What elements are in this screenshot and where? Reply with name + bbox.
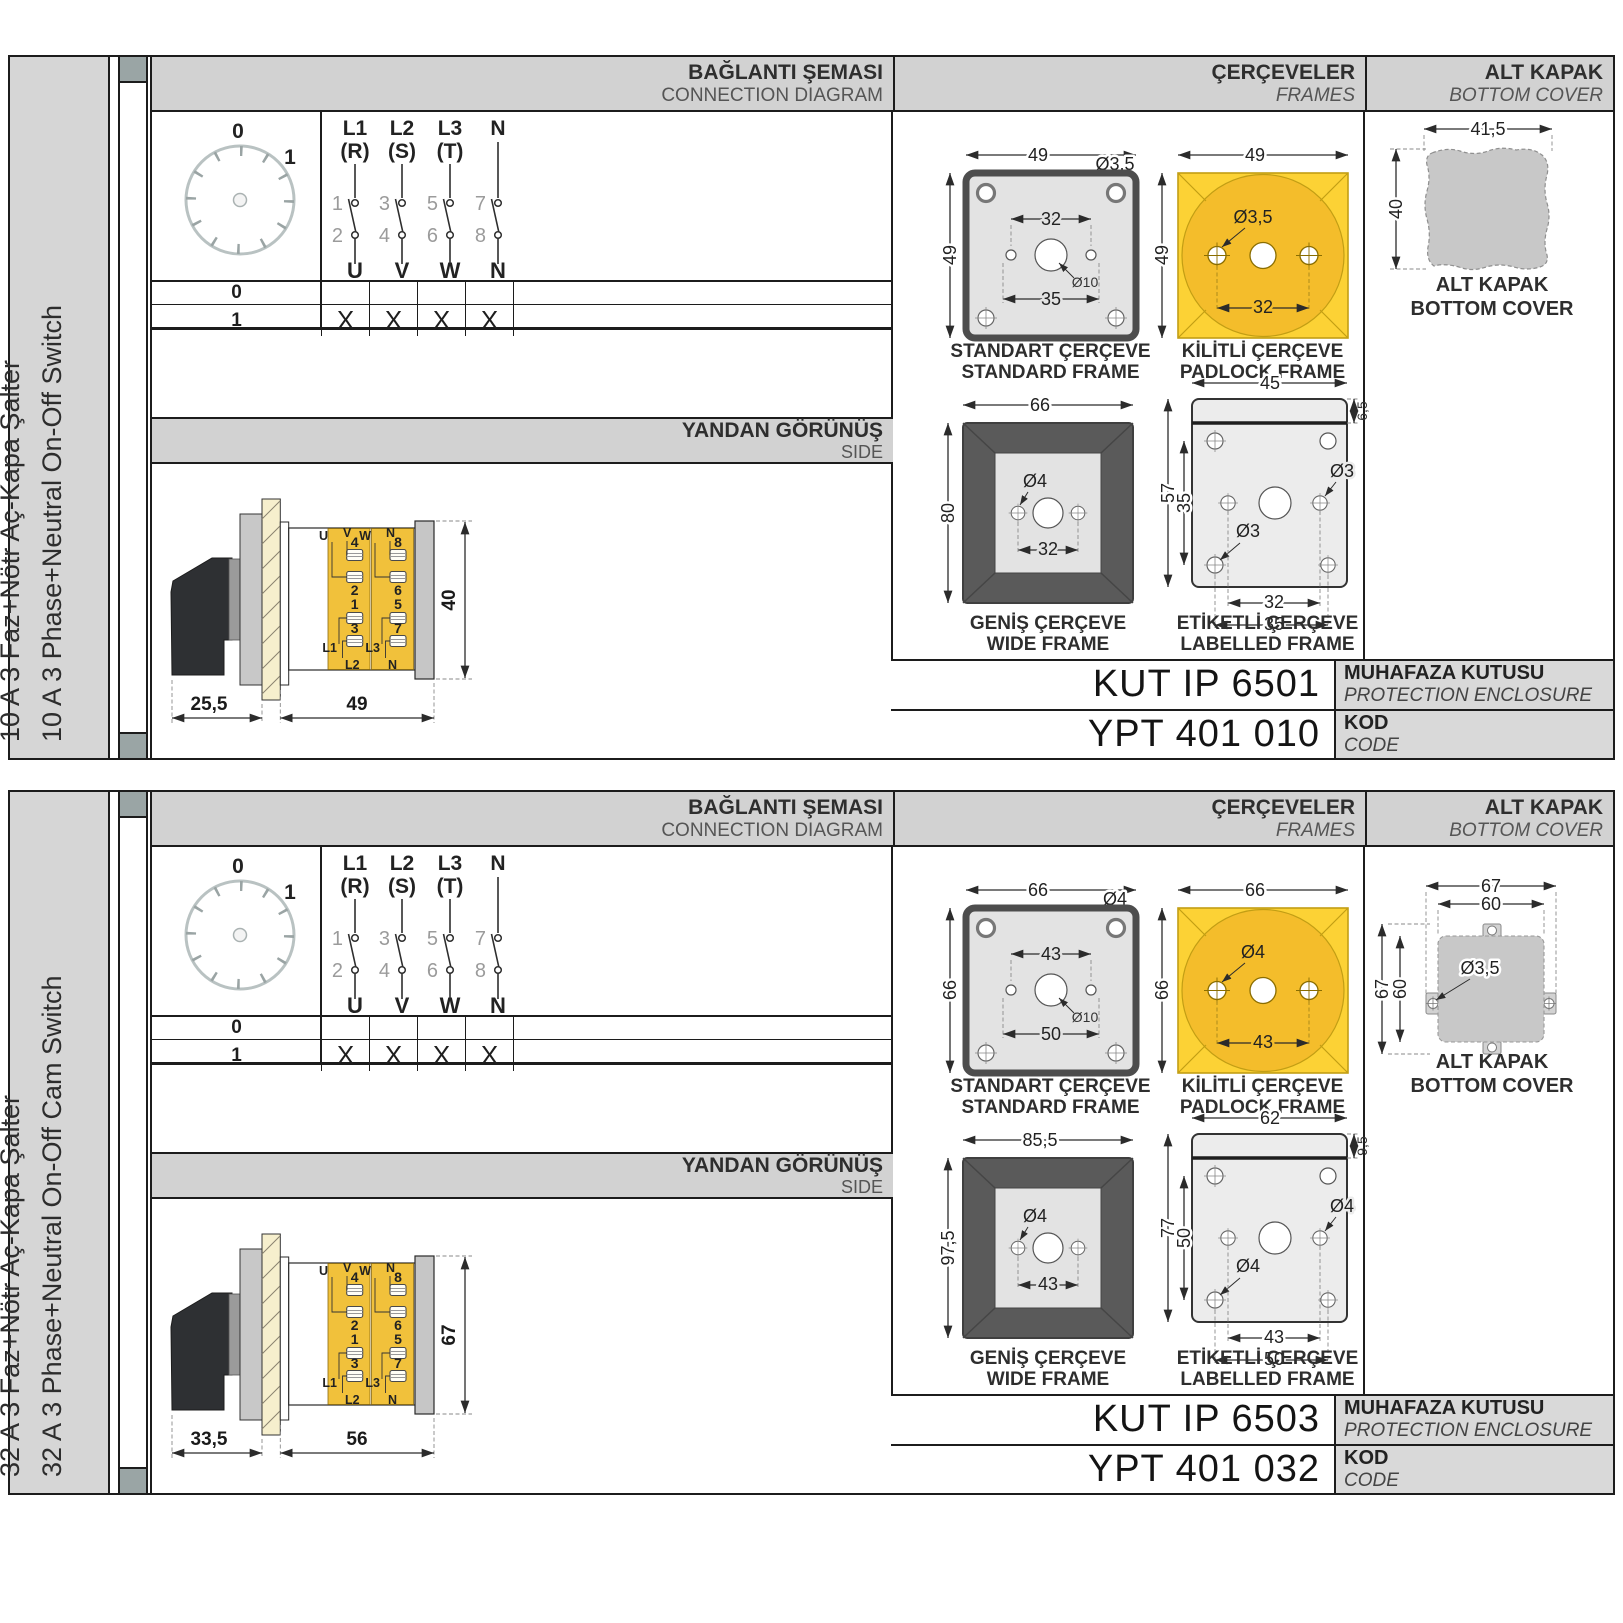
pad-hole-dim: Ø4 [1241, 942, 1265, 962]
wide-frame-caption: GENİŞ ÇERÇEVE WIDE FRAME [938, 613, 1158, 655]
mounting-panel [262, 499, 280, 700]
connection-header: BAĞLANTI ŞEMASI CONNECTION DIAGRAM [152, 792, 893, 845]
std-span-dim: 43 [1041, 944, 1061, 964]
enclosure-code: KUT IP 6501 [891, 661, 1334, 709]
bottom-cover-header-en: BOTTOM COVER [1449, 85, 1603, 107]
product-code: YPT 401 032 [891, 1446, 1334, 1494]
pole-4: N 7 8 N [475, 852, 506, 1018]
code-label: KOD CODE [1334, 1446, 1613, 1494]
pole-2: L2 (S) 3 4 V [379, 852, 416, 1018]
table-cell [465, 282, 513, 304]
handle-shaft [229, 1294, 241, 1375]
bottom-cover-header: ALT KAPAK BOTTOM COVER [1365, 792, 1613, 845]
svg-text:5: 5 [394, 1331, 402, 1347]
body-depth-dim: 49 [346, 694, 367, 715]
pad-width-dim: 66 [1245, 880, 1265, 900]
side-view-header-en: SIDE [841, 442, 883, 462]
standard-frame-caption: STANDART ÇERÇEVE STANDARD FRAME [938, 1076, 1163, 1118]
connection-header-tr: BAĞLANTI ŞEMASI [688, 61, 883, 85]
table-cell [417, 1017, 465, 1039]
rotary-dial-drawing: 0 1 [152, 112, 322, 282]
frames-header-en: FRAMES [1276, 820, 1355, 842]
standard-frame-drawing: 66 Ø4 66 43 Ø10 50 [938, 878, 1163, 1083]
wide-height-dim: 97,5 [938, 1230, 958, 1265]
svg-text:6: 6 [427, 225, 438, 247]
wide-frame-drawing: 85,5 97,5 Ø4 43 [938, 1130, 1158, 1355]
side-view-drawing: 4 2 1 3 8 6 5 7 U V W N L1 L2 L3 N 33,5 … [152, 1187, 512, 1487]
switch-handle [171, 1293, 232, 1410]
bottom-cover-caption: ALT KAPAK BOTTOM COVER [1372, 273, 1612, 321]
table-cell: X [417, 305, 465, 336]
row-label: 1 [152, 1040, 321, 1071]
svg-text:8: 8 [475, 960, 486, 982]
lab-height2-dim: 35 [1174, 493, 1194, 513]
product-panel: 10 A 3 Faz+Nötr Aç-Kapa Şalter 10 A 3 Ph… [8, 55, 1615, 760]
svg-text:L2: L2 [390, 117, 415, 140]
contact-number: 2 [332, 225, 343, 247]
lab-band-dim: 6,5 [1354, 401, 1370, 421]
terminal-number: 4 [351, 534, 359, 550]
enclosure-code: KUT IP 6503 [891, 1396, 1334, 1444]
code-rows: KUT IP 6503 MUHAFAZA KUTUSU PROTECTION E… [891, 1394, 1613, 1493]
pad-hole-dim: Ø3,5 [1233, 207, 1272, 227]
cover-outer-width-dim: 67 [1481, 876, 1501, 896]
cover-hole-dim: Ø3,5 [1460, 958, 1499, 978]
code-row: YPT 401 010 KOD CODE [891, 711, 1613, 759]
frames-header: ÇERÇEVELER FRAMES [893, 57, 1365, 110]
product-name-en: 32 A 3 Phase+Neutral On-Off Cam Switch [37, 975, 68, 1477]
connection-header: BAĞLANTI ŞEMASI CONNECTION DIAGRAM [152, 57, 893, 110]
contact-number: 2 [332, 960, 343, 982]
contact-diagram: L1 (R) 1 2 U L2 (S) 3 4 V L3 (T) 5 6 [328, 114, 892, 280]
code-row: YPT 401 032 KOD CODE [891, 1446, 1613, 1494]
lab-hole2-dim: Ø3 [1236, 521, 1260, 541]
svg-text:N: N [388, 658, 397, 672]
bottom-cover-drawing: 41,5 40 [1372, 117, 1612, 282]
svg-text:L3: L3 [365, 1376, 380, 1390]
svg-text:L1: L1 [322, 641, 337, 655]
table-cell: X [465, 305, 513, 336]
product-name-tr: 10 A 3 Faz+Nötr Aç-Kapa Şalter [0, 360, 26, 742]
table-cell [369, 1017, 417, 1039]
cover-width-dim: 41,5 [1470, 119, 1505, 139]
table-cell: X [369, 1040, 417, 1071]
product-name-en: 10 A 3 Phase+Neutral On-Off Switch [37, 305, 68, 742]
table-cell [369, 282, 417, 304]
product-name-tr: 32 A 3 Faz+Nötr Aç-Kapa Şalter [0, 1095, 26, 1477]
code-label: KOD CODE [1334, 711, 1613, 759]
svg-text:4: 4 [379, 225, 390, 247]
svg-text:8: 8 [394, 1269, 402, 1285]
pole-3: L3 (T) 5 6 W [427, 852, 464, 1018]
row-label: 0 [152, 1017, 321, 1039]
svg-text:4: 4 [379, 960, 390, 982]
pad-span-dim: 43 [1253, 1032, 1273, 1052]
svg-text:L2: L2 [345, 658, 360, 672]
table-cell: X [465, 1040, 513, 1071]
frames-header-tr: ÇERÇEVELER [1211, 61, 1355, 85]
pole-terminal-label: L1 [343, 852, 368, 875]
lab-width-dim: 45 [1260, 373, 1280, 393]
svg-text:8: 8 [475, 225, 486, 247]
svg-text:L3: L3 [365, 641, 380, 655]
svg-text:N: N [388, 1393, 397, 1407]
pole-2: L2 (S) 3 4 V [379, 117, 416, 283]
table-row-0: 0 [152, 282, 893, 304]
pole-1: L1 (R) 1 2 U [332, 117, 370, 283]
wide-frame-caption: GENİŞ ÇERÇEVE WIDE FRAME [938, 1348, 1158, 1390]
frames-header-tr: ÇERÇEVELER [1211, 796, 1355, 820]
enclosure-label: MUHAFAZA KUTUSU PROTECTION ENCLOSURE [1334, 661, 1613, 709]
svg-text:3: 3 [351, 620, 359, 636]
row-label: 1 [152, 305, 321, 336]
svg-text:7: 7 [394, 1355, 402, 1371]
spacer-block-top [120, 57, 146, 83]
mounting-panel [262, 1234, 280, 1435]
standard-frame-drawing: 49 Ø3,5 49 32 Ø10 35 [938, 143, 1163, 348]
table-row-0: 0 [152, 1017, 893, 1039]
pole-3: L3 (T) 5 6 W [427, 117, 464, 283]
std-span-dim: 32 [1041, 209, 1061, 229]
side-view-header-tr: YANDAN GÖRÜNÜŞ [682, 419, 883, 442]
std-height-dim: 66 [940, 980, 960, 1000]
bottom-cover-header-en: BOTTOM COVER [1449, 820, 1603, 842]
switch-handle [171, 558, 232, 675]
pole-1: L1 (R) 1 2 U [332, 852, 370, 1018]
cover-height-dim: 40 [1386, 199, 1406, 219]
svg-text:N: N [490, 852, 505, 875]
switching-table: 0 1 X X X X [152, 1015, 893, 1065]
contact-diagram: L1 (R) 1 2 U L2 (S) 3 4 V L3 (T) 5 6 [328, 849, 892, 1015]
wide-hole-dim: Ø4 [1023, 471, 1047, 491]
wide-width-dim: 85,5 [1022, 1130, 1057, 1150]
wide-width-dim: 66 [1030, 395, 1050, 415]
code-rows: KUT IP 6501 MUHAFAZA KUTUSU PROTECTION E… [891, 659, 1613, 758]
catalog-page: 10 A 3 Faz+Nötr Aç-Kapa Şalter 10 A 3 Ph… [0, 0, 1623, 1623]
svg-text:5: 5 [427, 928, 438, 950]
table-cell: X [417, 1040, 465, 1071]
lab-hole1-dim: Ø3 [1330, 461, 1354, 481]
pad-span-dim: 32 [1253, 297, 1273, 317]
wide-span-dim: 43 [1038, 1274, 1058, 1294]
connection-header-tr: BAĞLANTI ŞEMASI [688, 796, 883, 820]
lab-hole1-dim: Ø4 [1330, 1196, 1354, 1216]
svg-text:W: W [359, 1264, 371, 1278]
svg-text:8: 8 [394, 534, 402, 550]
section-header-row: BAĞLANTI ŞEMASI CONNECTION DIAGRAM ÇERÇE… [150, 792, 1613, 847]
std-center-hole-dim: Ø10 [1072, 1009, 1099, 1025]
bottom-cover-header-tr: ALT KAPAK [1485, 61, 1603, 85]
svg-text:V: V [343, 526, 352, 540]
wide-span-dim: 32 [1038, 539, 1058, 559]
table-filler [513, 305, 893, 336]
svg-text:7: 7 [394, 620, 402, 636]
spacer-plate [280, 522, 288, 685]
lab-hole2-dim: Ø4 [1236, 1256, 1260, 1276]
spacer-column [118, 792, 148, 1493]
bottom-cover-caption: ALT KAPAK BOTTOM COVER [1372, 1050, 1612, 1098]
front-depth-dim: 25,5 [191, 694, 228, 715]
bottom-cover-header-tr: ALT KAPAK [1485, 796, 1603, 820]
svg-text:5: 5 [394, 596, 402, 612]
product-panel: 32 A 3 Faz+Nötr Aç-Kapa Şalter 32 A 3 Ph… [8, 790, 1615, 1495]
padlock-frame-drawing: 49 49 Ø3,5 32 [1150, 143, 1375, 348]
spacer-plate [280, 1257, 288, 1420]
svg-text:L1: L1 [322, 1376, 337, 1390]
svg-text:L2: L2 [390, 852, 415, 875]
pad-width-dim: 49 [1245, 145, 1265, 165]
section-header-row: BAĞLANTI ŞEMASI CONNECTION DIAGRAM ÇERÇE… [150, 57, 1613, 112]
terminal-number: 4 [351, 1269, 359, 1285]
side-view-header-tr: YANDAN GÖRÜNÜŞ [682, 1154, 883, 1177]
dial-position-1: 1 [284, 146, 296, 169]
svg-text:(T): (T) [437, 140, 464, 163]
std-span2-dim: 35 [1041, 289, 1061, 309]
labelled-frame-drawing: 62 9,5 77 50 Ø4 Ø4 43 50 [1160, 1110, 1375, 1375]
lab-span-dim: 43 [1264, 1327, 1284, 1347]
lab-span-dim: 32 [1264, 592, 1284, 612]
enclosure-row: KUT IP 6501 MUHAFAZA KUTUSU PROTECTION E… [891, 661, 1613, 711]
svg-text:L2: L2 [345, 1393, 360, 1407]
handle-shaft [229, 559, 241, 640]
body-depth-dim: 56 [346, 1429, 367, 1450]
side-view-drawing: 4 2 1 3 8 6 5 7 U V W N L1 L2 L3 N 25,5 … [152, 452, 512, 752]
dial-position-1: 1 [284, 881, 296, 904]
contact-number: 1 [332, 193, 343, 215]
spacer-block-top [120, 792, 146, 818]
spacer-block-bottom [120, 1467, 146, 1493]
pole-terminal-label2: (R) [340, 875, 369, 898]
padlock-frame-drawing: 66 66 Ø4 43 [1150, 878, 1375, 1083]
pole-terminal-label: L1 [343, 117, 368, 140]
wide-frame-drawing: 66 80 Ø4 32 [938, 395, 1158, 620]
table-cell: X [321, 1040, 369, 1071]
body-height-dim: 40 [439, 589, 460, 610]
pad-height-dim: 66 [1152, 980, 1172, 1000]
lab-width-dim: 62 [1260, 1108, 1280, 1128]
end-plate [415, 521, 434, 679]
table-filler [513, 1040, 893, 1071]
spacer-block-bottom [120, 732, 146, 758]
pole-terminal-label2: (R) [340, 140, 369, 163]
bottom-cover-header: ALT KAPAK BOTTOM COVER [1365, 57, 1613, 110]
svg-text:V: V [343, 1261, 352, 1275]
std-height-dim: 49 [940, 245, 960, 265]
wide-height-dim: 80 [938, 503, 958, 523]
svg-text:(T): (T) [437, 875, 464, 898]
enclosure-label: MUHAFAZA KUTUSU PROTECTION ENCLOSURE [1334, 1396, 1613, 1444]
end-plate [415, 1256, 434, 1414]
dial-position-0: 0 [232, 120, 244, 143]
front-plate [240, 514, 262, 685]
side-label-column: 32 A 3 Faz+Nötr Aç-Kapa Şalter 32 A 3 Ph… [10, 792, 110, 1493]
frames-header: ÇERÇEVELER FRAMES [893, 792, 1365, 845]
table-row-1: 1 X X X X [152, 1039, 893, 1071]
cover-inner-height-dim: 60 [1390, 979, 1410, 999]
cover-outer-height-dim: 67 [1372, 979, 1392, 999]
product-code: YPT 401 010 [891, 711, 1334, 759]
svg-text:L3: L3 [438, 117, 463, 140]
side-label-column: 10 A 3 Faz+Nötr Aç-Kapa Şalter 10 A 3 Ph… [10, 57, 110, 758]
std-width-dim: 49 [1028, 145, 1048, 165]
table-cell [465, 1017, 513, 1039]
table-filler [513, 282, 893, 304]
table-cell [417, 282, 465, 304]
table-cell: X [369, 305, 417, 336]
dial-position-0: 0 [232, 855, 244, 878]
std-span2-dim: 50 [1041, 1024, 1061, 1044]
svg-text:W: W [359, 529, 371, 543]
table-row-1: 1 X X X X [152, 304, 893, 336]
labelled-frame-caption: ETİKETLİ ÇERÇEVE LABELLED FRAME [1160, 613, 1375, 655]
front-depth-dim: 33,5 [191, 1429, 228, 1450]
svg-text:U: U [319, 1264, 328, 1278]
table-filler [513, 1017, 893, 1039]
standard-frame-caption: STANDART ÇERÇEVE STANDARD FRAME [938, 341, 1163, 383]
std-center-hole-dim: Ø10 [1072, 274, 1099, 290]
cover-inner-width-dim: 60 [1481, 894, 1501, 914]
connection-header-en: CONNECTION DIAGRAM [661, 85, 883, 107]
svg-text:3: 3 [351, 1355, 359, 1371]
svg-text:3: 3 [379, 193, 390, 215]
svg-text:7: 7 [475, 193, 486, 215]
contact-number: 1 [332, 928, 343, 950]
svg-text:7: 7 [475, 928, 486, 950]
svg-text:5: 5 [427, 193, 438, 215]
spacer-column [118, 57, 148, 758]
body-height-dim: 67 [439, 1324, 460, 1345]
side-view-header-en: SIDE [841, 1177, 883, 1197]
rotary-dial-drawing: 0 1 [152, 847, 322, 1017]
table-cell [321, 282, 369, 304]
labelled-frame-caption: ETİKETLİ ÇERÇEVE LABELLED FRAME [1160, 1348, 1375, 1390]
svg-text:6: 6 [427, 960, 438, 982]
svg-text:(S): (S) [388, 875, 416, 898]
svg-text:N: N [386, 526, 395, 540]
lab-band-dim: 9,5 [1354, 1136, 1370, 1156]
svg-text:3: 3 [379, 928, 390, 950]
wide-hole-dim: Ø4 [1023, 1206, 1047, 1226]
svg-text:N: N [490, 117, 505, 140]
frames-header-en: FRAMES [1276, 85, 1355, 107]
pad-height-dim: 49 [1152, 245, 1172, 265]
enclosure-row: KUT IP 6503 MUHAFAZA KUTUSU PROTECTION E… [891, 1396, 1613, 1446]
connection-header-en: CONNECTION DIAGRAM [661, 820, 883, 842]
front-plate [240, 1249, 262, 1420]
svg-text:U: U [319, 529, 328, 543]
table-cell: X [321, 305, 369, 336]
svg-text:L3: L3 [438, 852, 463, 875]
row-label: 0 [152, 282, 321, 304]
switching-table: 0 1 X X X X [152, 280, 893, 330]
labelled-frame-drawing: 45 6,5 57 35 Ø3 Ø3 32 35 [1160, 375, 1375, 640]
svg-text:1: 1 [351, 596, 359, 612]
svg-text:(S): (S) [388, 140, 416, 163]
svg-text:N: N [386, 1261, 395, 1275]
lab-height2-dim: 50 [1174, 1228, 1194, 1248]
std-width-dim: 66 [1028, 880, 1048, 900]
pole-4: N 7 8 N [475, 117, 506, 283]
table-cell [321, 1017, 369, 1039]
svg-text:1: 1 [351, 1331, 359, 1347]
